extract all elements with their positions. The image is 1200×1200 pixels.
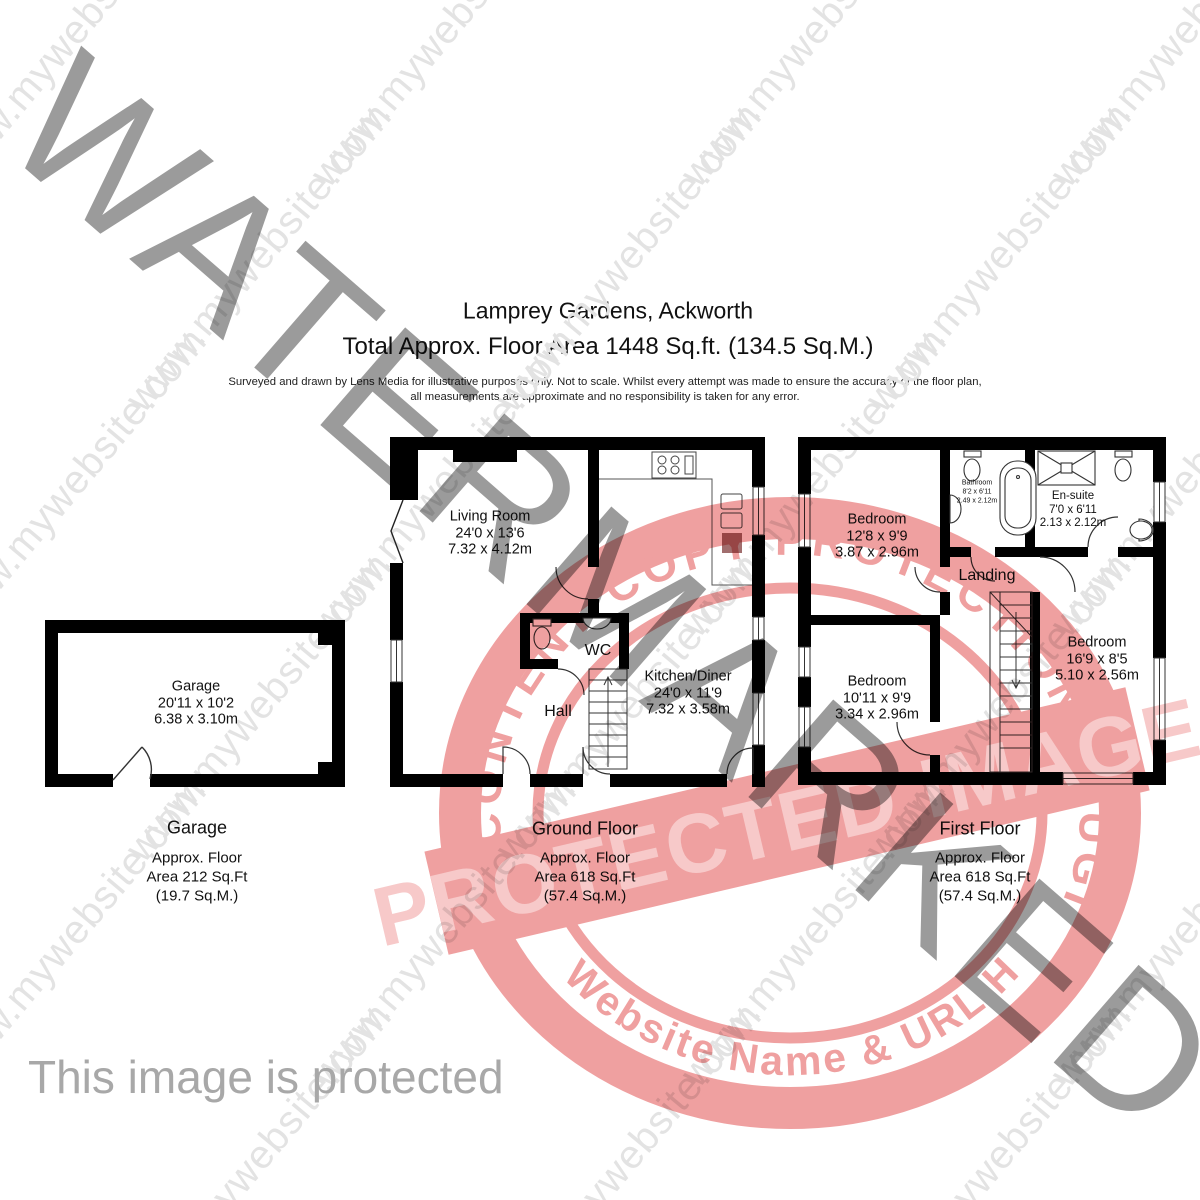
- image-protected-text: This image is protected: [28, 1050, 504, 1104]
- floorplan-page: www.mywebsite.comwww.mywebsite.comwww.my…: [0, 0, 1200, 1200]
- protection-stamp: WP CONTENT COPY PROTECTION PLUGIN My Web…: [0, 0, 1200, 1200]
